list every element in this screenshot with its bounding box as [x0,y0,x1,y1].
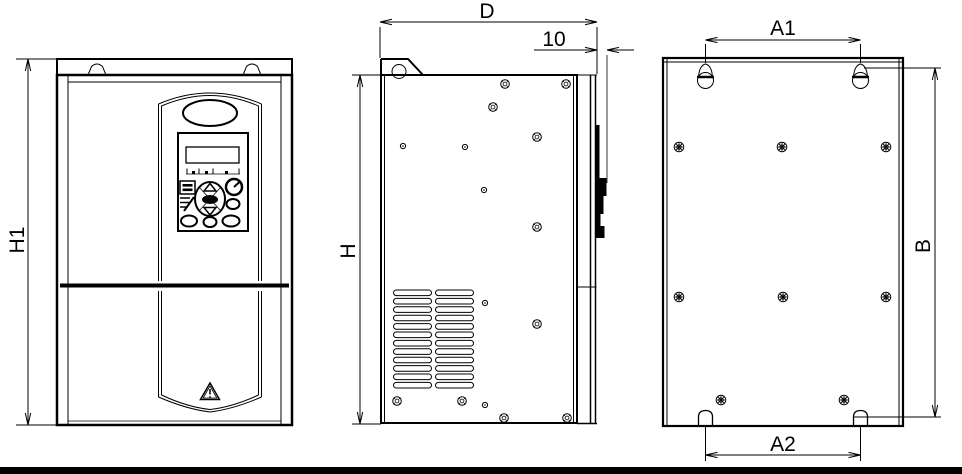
side-view: D 10 H [337,0,634,424]
screw-hole [533,320,542,329]
nav-down-icon [204,208,216,216]
nav-up-icon [204,184,216,192]
screw-hole-small [400,143,405,148]
door-oval-window [183,100,237,126]
mounting-notch [699,411,713,426]
screw-hole [881,292,891,302]
keypad-mf-button [204,217,217,227]
keypad-panel [178,133,248,231]
back-panel [663,58,903,426]
screw-hole [393,397,402,406]
screw-hole [778,292,788,302]
dim-a1: A1 [706,17,861,63]
dimension-drawing: H1 [0,0,962,474]
keypad-knob [226,179,242,195]
screw-hole [458,397,467,406]
mounting-notch [854,411,868,426]
screw-hole-small [482,300,487,305]
keypad-run-button [181,216,197,227]
screw-hole [674,292,684,302]
dim-h1: H1 [6,59,57,425]
keypad-nav-pad [195,182,225,216]
dim-a1-label: A1 [770,17,796,40]
back-view: A1 A2 B [663,17,941,461]
keypad-menu-button [180,181,195,194]
mounting-bump-right [243,64,261,75]
screw-hole-small [481,187,486,192]
dim-b-label: B [912,239,935,253]
dim-b: B [853,68,941,417]
dim-10: 10 [534,28,634,183]
front-body [57,75,292,425]
screw-hole [674,142,684,152]
screw-hole [501,80,510,89]
screw-hole [489,103,498,112]
screw-hole [716,395,726,405]
dim-h-label: H [337,243,360,258]
keypad-indicator-row [186,169,240,175]
screw-hole [533,223,542,232]
dim-10-label: 10 [542,28,565,51]
front-top-plate [57,59,292,75]
dim-d-label: D [479,0,494,23]
dim-a2: A2 [706,426,861,461]
tab-hole [392,65,406,79]
screw-hole [839,395,849,405]
dim-h: H [337,75,382,424]
warning-triangle-icon [201,383,220,400]
footer-bar [0,467,962,474]
screw-hole-small [462,144,467,149]
screw-hole [777,142,787,152]
screw-hole-small [482,402,487,407]
rail-clip [596,125,607,238]
screw-hole [500,414,509,423]
screw-hole [533,133,542,142]
dim-h1-label: H1 [6,227,29,254]
screw-hole [563,414,572,423]
screw-hole [881,142,891,152]
front-split-line [60,284,289,288]
mounting-bump-left [88,64,106,75]
vent-grille [394,290,474,388]
keypad-display [186,147,239,163]
front-view: H1 [6,59,292,425]
keypad-edit-icon [180,197,194,211]
drawing-canvas: H1 [0,0,962,474]
dim-a2-label: A2 [770,433,796,456]
back-screws [674,142,891,405]
side-body [381,59,577,423]
keypad-shift-button [227,199,240,209]
keyhole-slot [697,64,714,89]
screw-hole [562,80,571,89]
nav-enter-button [202,195,218,204]
front-lower-door [159,291,262,412]
side-back-rail [577,75,607,424]
front-upper-door [159,93,262,281]
keypad-stop-button [223,216,240,227]
